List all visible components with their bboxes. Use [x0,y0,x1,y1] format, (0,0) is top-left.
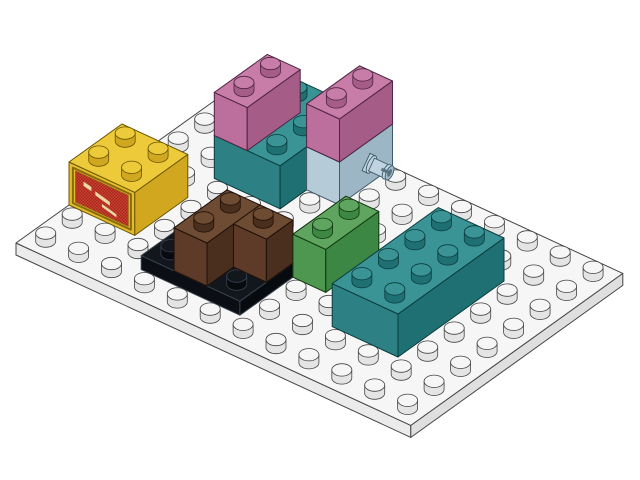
lego-scene-render [0,0,640,480]
lego-scene-stage [0,0,640,480]
